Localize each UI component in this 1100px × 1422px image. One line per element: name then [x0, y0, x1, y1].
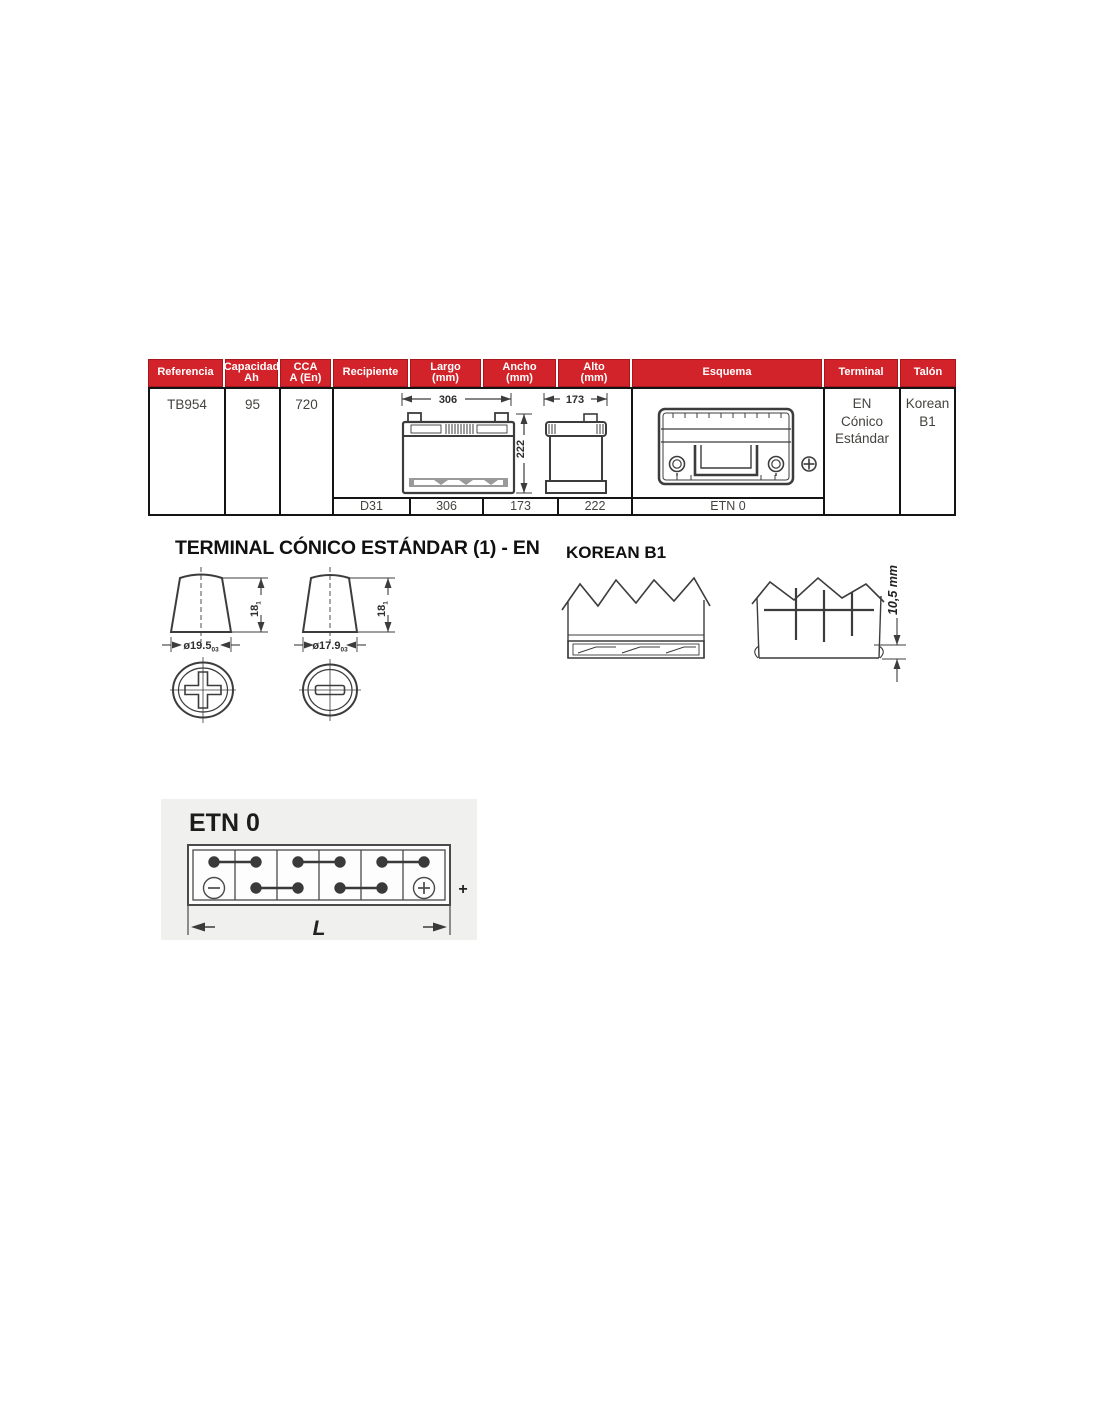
etn-title: ETN 0 — [189, 809, 260, 838]
dim-alto-label: 222 — [515, 440, 527, 458]
cell-referencia: TB954 — [150, 397, 224, 412]
etn-panel: ETN 0 + — [161, 799, 477, 940]
spec-table: Referencia Capacidad Ah CCA A (En) Recip… — [148, 359, 956, 516]
dim-ancho: 173 — [544, 393, 607, 406]
cell-capacidad: 95 — [226, 397, 279, 412]
col-header-recipiente: Recipiente — [333, 359, 408, 387]
terminal-section-title: TERMINAL CÓNICO ESTÁNDAR (1) - EN — [175, 537, 540, 560]
korean-b1-side-drawing — [562, 578, 710, 658]
plus-terminal-icon — [414, 878, 435, 899]
carry-handle-icon — [695, 445, 757, 475]
battery-side-view-drawing — [546, 414, 606, 493]
col-header-alto: Alto (mm) — [558, 359, 630, 387]
col-header-largo: Largo (mm) — [410, 359, 481, 387]
plus-terminal-symbol-icon — [170, 657, 236, 723]
etn-length-label: L — [313, 917, 326, 940]
etn-cell-layout-drawing: + L — [179, 843, 477, 938]
cell-cca: 720 — [281, 397, 332, 412]
terminal-post-icon — [670, 457, 685, 477]
subcell-alto: 222 — [559, 499, 631, 514]
esquema-drawing — [633, 389, 823, 497]
spec-table-body: TB954 95 720 EN Cónico Estándar Korean B… — [148, 387, 956, 516]
col-header-terminal: Terminal — [824, 359, 898, 387]
terminal-height-label: 181 — [376, 601, 390, 617]
terminal-cone-drawing: 181 ø19.503 181 ø17.903 — [158, 564, 408, 729]
spec-table-header-row: Referencia Capacidad Ah CCA A (En) Recip… — [148, 359, 956, 387]
subcell-largo: 306 — [411, 499, 482, 514]
battery-dimension-drawing: 306 — [334, 389, 631, 497]
col-header-ancho: Ancho (mm) — [483, 359, 556, 387]
subcell-recipiente: D31 — [334, 499, 409, 514]
negative-terminal-drawing: 181 ø17.903 — [294, 567, 395, 721]
dim-alto: 222 — [515, 414, 532, 493]
korean-b1-drawing: 10,5 mm — [556, 558, 916, 695]
minus-terminal-symbol-icon — [299, 659, 361, 721]
etn-length-dimension: L — [188, 905, 450, 940]
terminal-height-label: 181 — [249, 601, 263, 617]
subcell-ancho: 173 — [484, 499, 557, 514]
dim-ancho-label: 173 — [566, 394, 584, 406]
cell-talon: Korean B1 — [901, 395, 954, 430]
col-header-capacidad: Capacidad Ah — [225, 359, 278, 387]
col-header-esquema: Esquema — [632, 359, 822, 387]
positive-terminal-drawing: 181 ø19.503 — [162, 567, 268, 723]
col-header-cca: CCA A (En) — [280, 359, 331, 387]
col-header-talon: Talón — [900, 359, 956, 387]
battery-front-view-drawing — [403, 413, 514, 493]
dim-largo-label: 306 — [439, 394, 457, 406]
cell-terminal: EN Cónico Estándar — [825, 395, 899, 448]
positive-diameter-label: ø19.503 — [183, 640, 219, 654]
subcell-esquema: ETN 0 — [633, 499, 823, 514]
korean-dimension-label: 10,5 mm — [886, 565, 900, 615]
etn-polarity-plus: + — [458, 881, 467, 898]
korean-b1-section-drawing: 10,5 mm — [752, 565, 906, 682]
dim-largo: 306 — [402, 393, 511, 406]
positive-polarity-icon — [802, 457, 816, 471]
terminal-post-icon — [769, 457, 784, 477]
col-header-referencia: Referencia — [148, 359, 223, 387]
battery-spec-sheet: { "colors": { "header_red": "#d2232a", "… — [0, 0, 1100, 1422]
negative-diameter-label: ø17.903 — [312, 640, 348, 654]
minus-terminal-icon — [204, 878, 225, 899]
